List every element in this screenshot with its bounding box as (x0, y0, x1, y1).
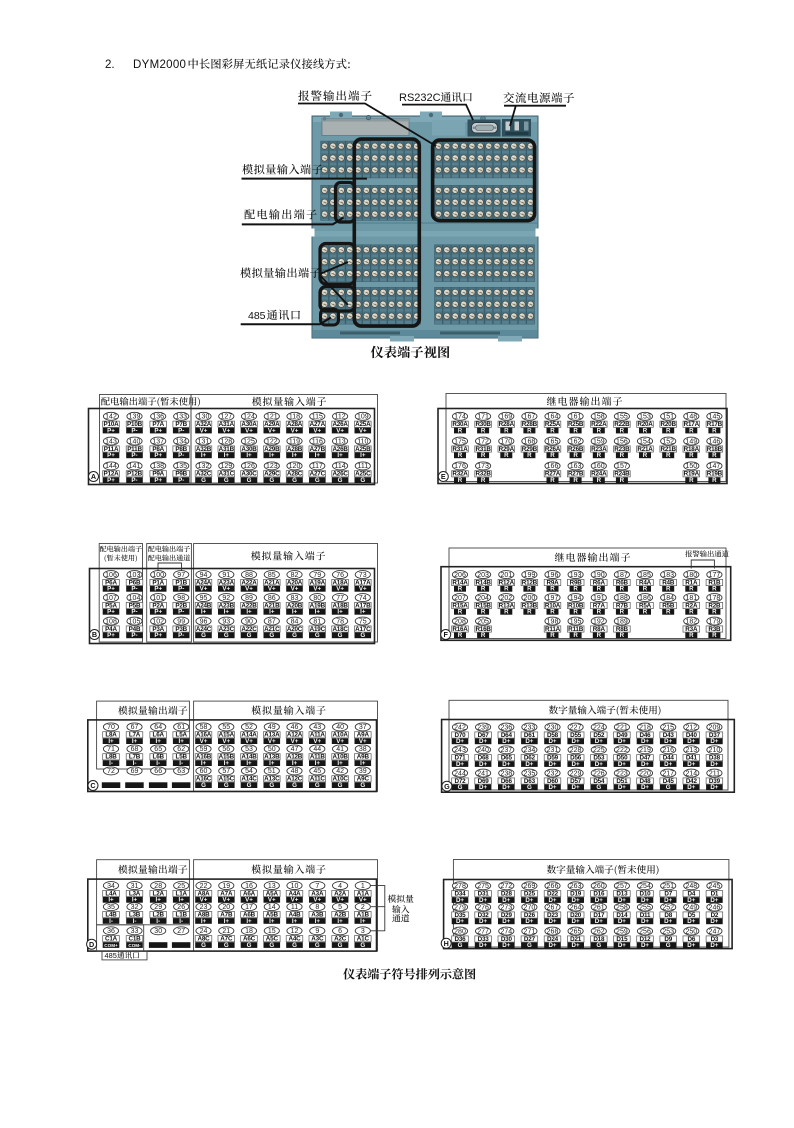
svg-text:71: 71 (107, 746, 115, 753)
svg-text:D+: D+ (502, 942, 510, 949)
svg-text:260: 260 (593, 883, 605, 890)
svg-text:132: 132 (198, 463, 210, 470)
svg-text:197: 197 (547, 595, 559, 602)
svg-text:23: 23 (200, 904, 208, 911)
svg-text:65: 65 (154, 746, 162, 753)
svg-text:9: 9 (315, 928, 319, 935)
svg-text:169: 169 (500, 414, 512, 421)
svg-text:V+: V+ (313, 586, 321, 593)
svg-text:I+: I+ (360, 609, 366, 616)
svg-text:I+: I+ (315, 760, 321, 767)
svg-text:76: 76 (336, 572, 344, 579)
svg-text:G: G (360, 477, 365, 484)
svg-text:240: 240 (477, 747, 489, 754)
svg-text:157: 157 (616, 463, 628, 470)
svg-text:D+: D+ (572, 784, 580, 791)
svg-text:R: R (527, 609, 532, 616)
svg-text:237: 237 (500, 747, 512, 754)
svg-text:V+: V+ (222, 738, 230, 745)
svg-text:68: 68 (131, 746, 139, 753)
svg-text:I-: I- (109, 760, 113, 767)
svg-text:I-: I- (179, 918, 183, 925)
svg-text:38: 38 (359, 746, 367, 753)
svg-text:D+: D+ (618, 784, 626, 791)
svg-text:247: 247 (709, 928, 721, 935)
svg-text:93: 93 (222, 618, 230, 625)
svg-text:269: 269 (524, 883, 536, 890)
svg-text:267: 267 (547, 904, 559, 911)
svg-text:26: 26 (177, 904, 185, 911)
svg-text:126: 126 (243, 463, 255, 470)
svg-text:I+: I+ (360, 452, 366, 459)
svg-text:P+: P+ (107, 427, 115, 434)
svg-text:175: 175 (454, 438, 466, 445)
svg-text:D+: D+ (618, 942, 626, 949)
svg-text:G: G (201, 632, 206, 639)
svg-text:I+: I+ (315, 918, 321, 925)
svg-text:D+: D+ (572, 738, 580, 745)
svg-text:R: R (666, 427, 671, 434)
svg-text:D+: D+ (687, 942, 695, 949)
svg-text:R: R (597, 427, 602, 434)
svg-text:139: 139 (129, 414, 141, 421)
svg-text:58: 58 (200, 724, 208, 731)
svg-text:181: 181 (685, 595, 697, 602)
svg-text:99: 99 (177, 618, 185, 625)
svg-text:R: R (620, 609, 625, 616)
svg-text:G: G (269, 942, 274, 949)
svg-text:194: 194 (570, 595, 582, 602)
svg-text:246: 246 (709, 904, 721, 911)
svg-text:174: 174 (454, 414, 466, 421)
svg-text:D+: D+ (641, 761, 649, 768)
svg-text:I+: I+ (179, 738, 185, 745)
svg-text:46: 46 (291, 724, 299, 731)
svg-text:57: 57 (222, 768, 230, 775)
svg-text:177: 177 (709, 572, 721, 579)
svg-text:86: 86 (268, 595, 276, 602)
svg-text:I+: I+ (224, 609, 230, 616)
svg-text:232: 232 (547, 770, 559, 777)
svg-text:219: 219 (639, 747, 651, 754)
svg-text:I+: I+ (108, 738, 114, 745)
svg-text:14: 14 (268, 904, 276, 911)
svg-text:255: 255 (639, 904, 651, 911)
svg-text:G: G (360, 632, 365, 639)
svg-text:R: R (527, 452, 532, 459)
svg-text:270: 270 (524, 904, 536, 911)
svg-text:21: 21 (222, 928, 230, 935)
svg-text:D+: D+ (710, 942, 718, 949)
svg-text:185: 185 (639, 572, 651, 579)
svg-text:V+: V+ (245, 738, 253, 745)
svg-text:179: 179 (709, 618, 721, 625)
svg-text:D+: D+ (525, 738, 533, 745)
svg-text:191: 191 (593, 595, 605, 602)
svg-text:225: 225 (593, 747, 605, 754)
svg-text:154: 154 (639, 438, 651, 445)
svg-text:I+: I+ (292, 609, 298, 616)
svg-text:I-: I- (156, 918, 160, 925)
svg-text:R: R (643, 452, 648, 459)
svg-text:I+: I+ (269, 760, 275, 767)
svg-text:R: R (504, 586, 509, 593)
svg-text:D+: D+ (548, 942, 556, 949)
svg-text:258: 258 (616, 904, 628, 911)
svg-text:170: 170 (500, 438, 512, 445)
svg-text:R: R (712, 632, 717, 639)
svg-text:P-: P- (131, 609, 137, 616)
svg-text:242: 242 (454, 724, 466, 731)
svg-text:91: 91 (222, 572, 230, 579)
svg-text:V+: V+ (359, 427, 367, 434)
svg-text:I+: I+ (201, 918, 207, 925)
svg-text:145: 145 (709, 414, 721, 421)
svg-text:6: 6 (338, 928, 342, 935)
svg-text:207: 207 (454, 595, 466, 602)
svg-text:D+: D+ (456, 738, 464, 745)
svg-text:190: 190 (593, 572, 605, 579)
svg-text:R: R (666, 452, 671, 459)
svg-text:250: 250 (685, 928, 697, 935)
svg-text:189: 189 (616, 618, 628, 625)
svg-text:V+: V+ (313, 738, 321, 745)
svg-text:V+: V+ (291, 586, 299, 593)
svg-text:101: 101 (152, 595, 164, 602)
svg-text:52: 52 (245, 724, 253, 731)
svg-text:C: C (90, 781, 95, 790)
svg-text:P+: P+ (154, 632, 162, 639)
svg-text:31: 31 (131, 883, 139, 890)
svg-text:R: R (597, 452, 602, 459)
svg-text:95: 95 (200, 595, 208, 602)
svg-text:R: R (620, 477, 625, 484)
svg-text:129: 129 (220, 463, 232, 470)
svg-text:I+: I+ (246, 609, 252, 616)
svg-text:R: R (504, 427, 509, 434)
svg-text:78: 78 (336, 618, 344, 625)
svg-text:229: 229 (570, 770, 582, 777)
svg-text:COM-: COM- (128, 943, 141, 948)
svg-text:G: G (338, 477, 343, 484)
svg-text:G: G (360, 782, 365, 789)
svg-text:275: 275 (477, 883, 489, 890)
svg-text:R: R (504, 452, 509, 459)
svg-text:R: R (597, 477, 602, 484)
svg-text:12: 12 (291, 928, 299, 935)
svg-text:97: 97 (177, 572, 185, 579)
svg-text:D+: D+ (456, 918, 464, 925)
svg-text:I+: I+ (246, 918, 252, 925)
svg-text:69: 69 (131, 768, 139, 775)
svg-text:R: R (527, 427, 532, 434)
svg-text:122: 122 (266, 438, 278, 445)
svg-text:7: 7 (315, 883, 319, 890)
svg-text:262: 262 (593, 928, 605, 935)
svg-text:142: 142 (105, 414, 117, 421)
svg-text:148: 148 (685, 414, 697, 421)
svg-text:60: 60 (200, 768, 208, 775)
svg-text:V+: V+ (200, 427, 208, 434)
svg-text:153: 153 (639, 414, 651, 421)
svg-text:D+: D+ (595, 761, 603, 768)
svg-text:224: 224 (593, 724, 605, 731)
svg-text:66: 66 (154, 768, 162, 775)
svg-text:143: 143 (105, 438, 117, 445)
svg-text:P+: P+ (154, 477, 162, 484)
svg-text:13: 13 (268, 883, 276, 890)
svg-text:74: 74 (359, 595, 367, 602)
svg-text:180: 180 (685, 572, 697, 579)
svg-text:236: 236 (500, 724, 512, 731)
svg-text:188: 188 (616, 595, 628, 602)
svg-text:257: 257 (616, 883, 628, 890)
svg-text:144: 144 (105, 463, 117, 470)
svg-text:R: R (620, 427, 625, 434)
svg-text:192: 192 (593, 618, 605, 625)
svg-text:D+: D+ (618, 918, 626, 925)
svg-text:A: A (91, 472, 96, 481)
svg-text:112: 112 (335, 414, 346, 421)
svg-text:155: 155 (616, 414, 628, 421)
svg-text:3: 3 (361, 928, 365, 935)
svg-text:B: B (92, 630, 97, 639)
svg-text:10: 10 (291, 883, 299, 890)
svg-text:D+: D+ (618, 761, 626, 768)
svg-text:G: G (247, 782, 252, 789)
svg-text:53: 53 (245, 746, 253, 753)
svg-text:D+: D+ (664, 761, 672, 768)
svg-text:P+: P+ (154, 427, 162, 434)
svg-text:118: 118 (289, 414, 300, 421)
svg-text:D: D (89, 940, 94, 949)
svg-text:P-: P- (131, 477, 137, 484)
svg-text:R: R (573, 427, 578, 434)
svg-text:249: 249 (685, 904, 697, 911)
svg-text:233: 233 (524, 724, 536, 731)
svg-text:P-: P- (178, 477, 184, 484)
svg-text:D+: D+ (595, 918, 603, 925)
svg-text:G: G (315, 782, 320, 789)
svg-text:D+: D+ (456, 761, 464, 768)
svg-text:I+: I+ (269, 452, 275, 459)
svg-text:R: R (550, 632, 555, 639)
svg-text:F: F (444, 630, 449, 639)
svg-text:20: 20 (222, 904, 230, 911)
svg-text:17: 17 (245, 904, 253, 911)
svg-text:I+: I+ (156, 738, 162, 745)
svg-text:125: 125 (243, 438, 255, 445)
svg-text:1: 1 (361, 883, 365, 890)
svg-text:140: 140 (129, 438, 141, 445)
svg-text:120: 120 (289, 463, 301, 470)
svg-text:D+: D+ (618, 738, 626, 745)
svg-text:113: 113 (335, 438, 346, 445)
svg-text:172: 172 (477, 438, 489, 445)
svg-text:96: 96 (200, 618, 208, 625)
svg-text:G: G (269, 782, 274, 789)
svg-text:43: 43 (313, 724, 321, 731)
svg-text:209: 209 (709, 724, 721, 731)
svg-text:D+: D+ (641, 918, 649, 925)
svg-text:I+: I+ (292, 918, 298, 925)
svg-text:G: G (596, 942, 601, 949)
svg-text:239: 239 (477, 724, 489, 731)
svg-text:R: R (550, 586, 555, 593)
svg-text:85: 85 (268, 572, 276, 579)
svg-text:114: 114 (335, 463, 346, 470)
svg-text:P-: P- (178, 632, 184, 639)
svg-text:R: R (643, 586, 648, 593)
svg-text:H: H (444, 939, 449, 948)
svg-text:R: R (573, 452, 578, 459)
svg-text:37: 37 (359, 724, 367, 731)
svg-text:I+: I+ (201, 760, 207, 767)
svg-text:P+: P+ (107, 632, 115, 639)
svg-text:230: 230 (547, 724, 559, 731)
svg-text:G: G (247, 477, 252, 484)
svg-text:164: 164 (547, 414, 559, 421)
svg-text:G: G (338, 632, 343, 639)
svg-text:42: 42 (336, 768, 344, 775)
svg-text:100: 100 (152, 572, 164, 579)
svg-text:264: 264 (570, 904, 582, 911)
svg-text:162: 162 (570, 438, 582, 445)
svg-text:205: 205 (477, 618, 489, 625)
svg-text:245: 245 (709, 883, 721, 890)
svg-text:I+: I+ (337, 609, 343, 616)
svg-text:R: R (481, 609, 486, 616)
svg-text:D+: D+ (641, 784, 649, 791)
svg-text:P-: P- (131, 586, 137, 593)
svg-text:161: 161 (570, 414, 582, 421)
svg-text:C1A: C1A (105, 936, 118, 943)
svg-text:I+: I+ (224, 452, 230, 459)
svg-text:D+: D+ (479, 784, 487, 791)
svg-text:193: 193 (570, 572, 582, 579)
svg-text:I+: I+ (337, 760, 343, 767)
svg-text:D+: D+ (502, 738, 510, 745)
svg-text:77: 77 (336, 595, 344, 602)
svg-text:G: G (247, 632, 252, 639)
svg-text:R: R (504, 609, 509, 616)
svg-text:D+: D+ (502, 918, 510, 925)
svg-text:4: 4 (338, 883, 342, 890)
svg-text:I+: I+ (337, 918, 343, 925)
svg-text:217: 217 (662, 770, 674, 777)
svg-text:210: 210 (709, 747, 721, 754)
svg-text:94: 94 (200, 572, 208, 579)
svg-text:208: 208 (454, 618, 466, 625)
svg-text:81: 81 (313, 618, 321, 625)
svg-text:106: 106 (105, 572, 117, 579)
svg-text:G: G (666, 942, 671, 949)
svg-text:244: 244 (454, 770, 466, 777)
svg-text:R: R (712, 609, 717, 616)
svg-text:R: R (643, 427, 648, 434)
svg-text:R: R (458, 427, 463, 434)
svg-text:R: R (712, 452, 717, 459)
svg-text:D+: D+ (525, 918, 533, 925)
svg-text:186: 186 (639, 595, 651, 602)
svg-text:222: 222 (616, 747, 628, 754)
svg-text:G: G (666, 784, 671, 791)
svg-text:I-: I- (179, 760, 183, 767)
svg-text:135: 135 (175, 463, 187, 470)
svg-text:R: R (620, 452, 625, 459)
svg-text:274: 274 (500, 928, 512, 935)
svg-text:165: 165 (547, 438, 559, 445)
svg-text:R: R (573, 632, 578, 639)
svg-text:277: 277 (477, 928, 489, 935)
svg-text:136: 136 (152, 414, 164, 421)
svg-text:I+: I+ (360, 760, 366, 767)
svg-text:198: 198 (547, 618, 559, 625)
svg-text:R: R (666, 586, 671, 593)
svg-text:54: 54 (245, 768, 253, 775)
svg-text:R: R (573, 586, 578, 593)
svg-text:G: G (315, 632, 320, 639)
svg-text:124: 124 (243, 414, 255, 421)
svg-text:I+: I+ (246, 452, 252, 459)
svg-text:130: 130 (198, 414, 210, 421)
svg-text:D+: D+ (710, 784, 718, 791)
svg-text:116: 116 (312, 438, 323, 445)
svg-text:P-: P- (178, 609, 184, 616)
svg-text:119: 119 (289, 438, 300, 445)
svg-text:235: 235 (524, 770, 536, 777)
svg-text:110: 110 (357, 438, 368, 445)
svg-text:24: 24 (200, 928, 208, 935)
svg-text:R: R (458, 586, 463, 593)
svg-text:G: G (527, 942, 532, 949)
svg-text:214: 214 (685, 770, 697, 777)
svg-text:I+: I+ (201, 452, 207, 459)
svg-text:D+: D+ (687, 761, 695, 768)
svg-text:108: 108 (105, 618, 117, 625)
svg-text:147: 147 (709, 463, 721, 470)
svg-text:V+: V+ (268, 427, 276, 434)
svg-text:P+: P+ (107, 477, 115, 484)
svg-text:DYM2000: DYM2000 (133, 59, 186, 71)
svg-text:141: 141 (129, 463, 141, 470)
svg-text:16: 16 (245, 883, 253, 890)
svg-text:127: 127 (220, 414, 232, 421)
svg-text:50: 50 (268, 746, 276, 753)
svg-text:G: G (338, 942, 343, 949)
svg-text:64: 64 (154, 724, 162, 731)
svg-text:36: 36 (107, 928, 115, 935)
svg-text:105: 105 (129, 618, 141, 625)
svg-text:G: G (224, 632, 229, 639)
svg-text:P+: P+ (107, 609, 115, 616)
svg-text:280: 280 (454, 928, 466, 935)
svg-text:195: 195 (570, 618, 582, 625)
svg-text:G: G (315, 477, 320, 484)
svg-text:251: 251 (662, 883, 674, 890)
svg-text:263: 263 (570, 883, 582, 890)
svg-text:R: R (689, 427, 694, 434)
svg-text:137: 137 (152, 438, 164, 445)
svg-text:184: 184 (662, 595, 674, 602)
svg-text:D+: D+ (710, 918, 718, 925)
svg-text:279: 279 (454, 904, 466, 911)
svg-text:271: 271 (524, 928, 536, 935)
svg-text:28: 28 (154, 883, 162, 890)
svg-text:151: 151 (662, 414, 674, 421)
svg-text:I+: I+ (224, 918, 230, 925)
svg-text:171: 171 (477, 414, 489, 421)
